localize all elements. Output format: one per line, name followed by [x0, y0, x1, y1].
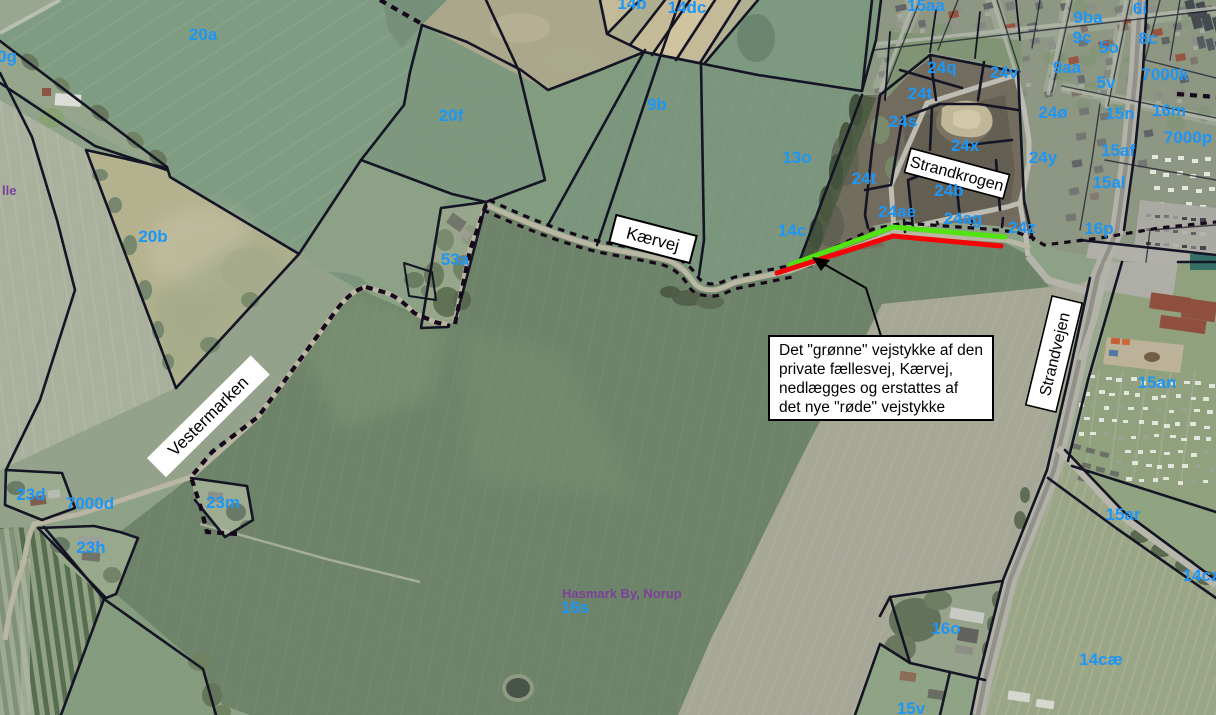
svg-text:15af: 15af	[1101, 141, 1135, 160]
svg-text:private fællesvej, Kærvej,: private fællesvej, Kærvej,	[779, 361, 953, 378]
svg-text:24q: 24q	[927, 58, 956, 77]
svg-text:14cæ: 14cæ	[1079, 650, 1122, 669]
svg-text:13o: 13o	[782, 148, 811, 167]
svg-text:20f: 20f	[439, 106, 464, 125]
svg-text:23m: 23m	[206, 493, 240, 512]
svg-text:20b: 20b	[138, 227, 167, 246]
svg-text:9b: 9b	[647, 95, 667, 114]
svg-text:15n: 15n	[1105, 104, 1134, 123]
svg-text:5v: 5v	[1097, 73, 1116, 92]
svg-text:24t: 24t	[852, 169, 877, 188]
svg-text:15ar: 15ar	[1106, 505, 1141, 524]
svg-text:15aa: 15aa	[907, 0, 945, 15]
svg-text:14dc: 14dc	[668, 0, 707, 17]
svg-text:14cz: 14cz	[1183, 566, 1216, 585]
svg-text:24y: 24y	[1029, 148, 1058, 167]
svg-text:Det "grønne" vejstykke af den: Det "grønne" vejstykke af den	[779, 342, 983, 359]
svg-text:24ae: 24ae	[878, 202, 916, 221]
svg-text:9c: 9c	[1073, 28, 1092, 47]
svg-text:16m: 16m	[1152, 101, 1186, 120]
svg-text:det nye "røde" vejstykke: det nye "røde" vejstykke	[779, 399, 945, 416]
svg-text:lle: lle	[2, 183, 16, 198]
svg-text:20a: 20a	[189, 25, 218, 44]
svg-text:5o: 5o	[1099, 38, 1119, 57]
svg-text:15an: 15an	[1138, 373, 1177, 392]
svg-text:23h: 23h	[76, 538, 105, 557]
svg-text:14b: 14b	[617, 0, 646, 13]
svg-text:24t: 24t	[908, 84, 933, 103]
svg-text:15v: 15v	[897, 699, 926, 715]
svg-text:7000d: 7000d	[66, 494, 114, 513]
svg-text:24ø: 24ø	[1038, 103, 1068, 122]
svg-text:24x: 24x	[951, 136, 980, 155]
svg-text:7000p: 7000p	[1164, 128, 1212, 147]
svg-text:24ag: 24ag	[944, 209, 983, 228]
svg-text:7000k: 7000k	[1141, 65, 1189, 84]
svg-text:9aa: 9aa	[1053, 58, 1082, 77]
svg-text:24b: 24b	[934, 181, 963, 200]
svg-text:nedlægges og erstattes af: nedlægges og erstattes af	[779, 380, 959, 397]
svg-text:14c: 14c	[778, 221, 806, 240]
svg-text:Hasmark By, Norup: Hasmark By, Norup	[562, 586, 682, 601]
svg-text:8c: 8c	[1139, 29, 1158, 48]
svg-text:16p: 16p	[1084, 219, 1113, 238]
svg-text:24s: 24s	[889, 112, 917, 131]
svg-text:24z: 24z	[1008, 218, 1035, 237]
svg-text:15al: 15al	[1092, 173, 1125, 192]
svg-text:24v: 24v	[990, 63, 1019, 82]
svg-text:16o: 16o	[931, 619, 960, 638]
svg-text:23d: 23d	[16, 485, 45, 504]
svg-text:9ba: 9ba	[1073, 8, 1103, 27]
svg-text:6i: 6i	[1133, 0, 1147, 18]
svg-text:0g: 0g	[0, 47, 17, 66]
svg-text:53a: 53a	[441, 250, 470, 269]
